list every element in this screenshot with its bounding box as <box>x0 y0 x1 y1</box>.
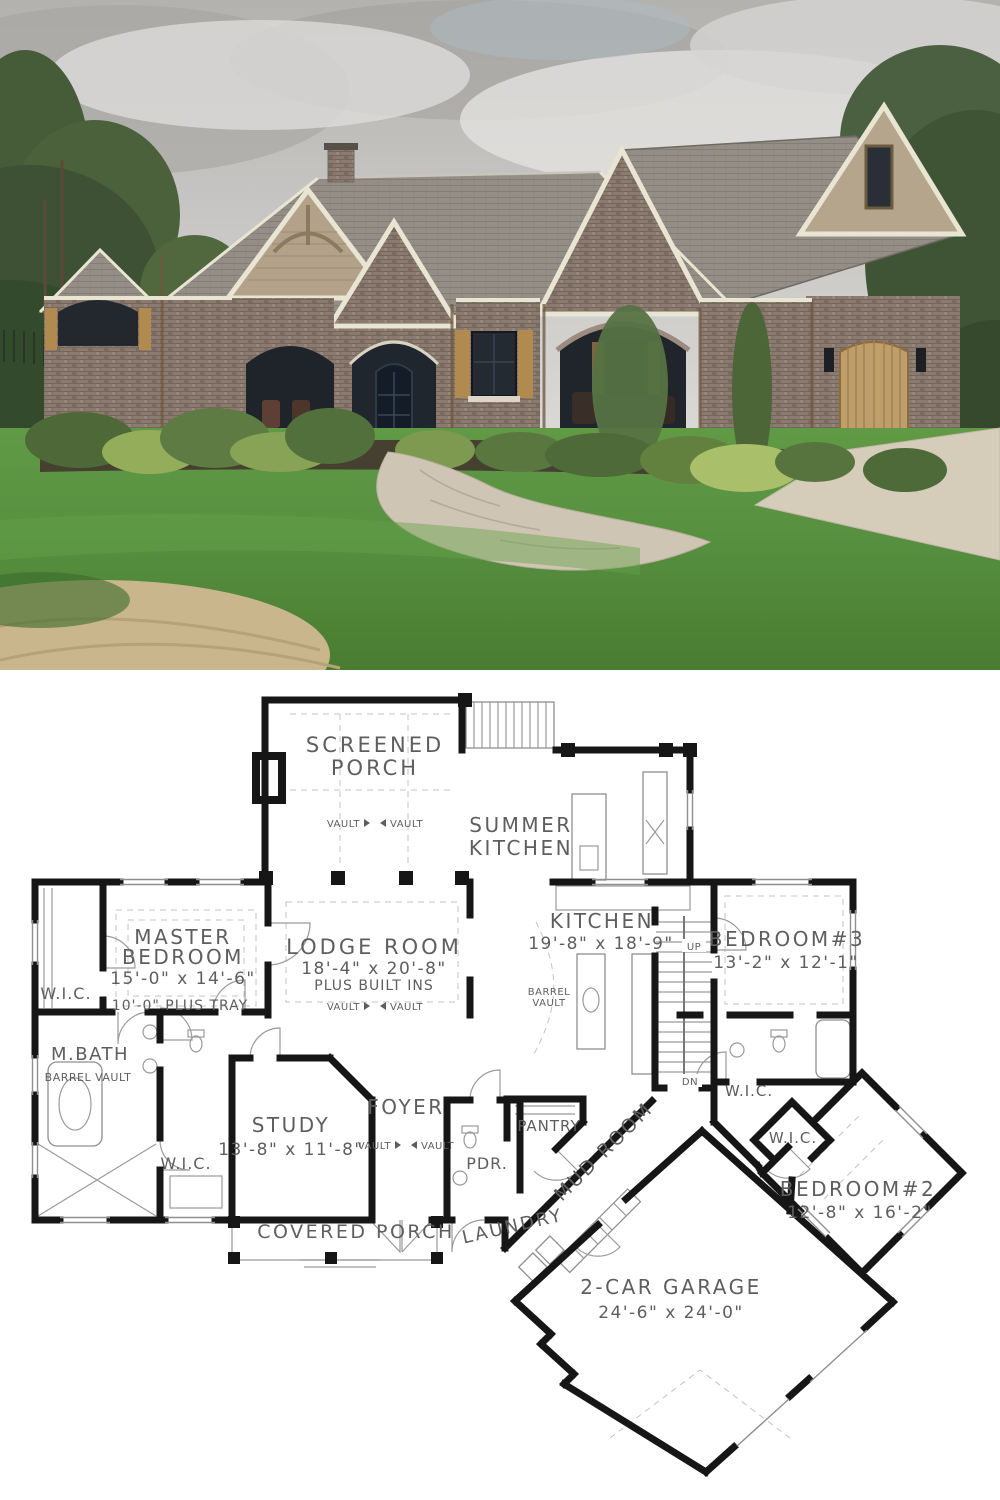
lantern <box>916 348 926 372</box>
label-lodge: LODGE ROOM <box>286 935 462 959</box>
pdr-sink <box>453 1171 467 1185</box>
label-summer-kitchen: SUMMER <box>469 813 572 837</box>
shutter <box>45 308 57 350</box>
deck-stairs <box>466 702 554 748</box>
label-garage: 2-CAR GARAGE <box>580 1275 762 1299</box>
lantern <box>824 348 834 372</box>
summer-kitchen-counter <box>643 772 667 874</box>
dims-lodge: 18'-4" x 20'-8" <box>301 959 447 979</box>
bath3-toilet <box>773 1036 785 1052</box>
note-master: 10'-0" PLUS TRAY <box>112 998 248 1014</box>
kitchen-cabinet <box>632 954 652 1074</box>
label-kitchen: KITCHEN <box>550 909 654 933</box>
label-barrel-vault-kitchen: BARREL <box>528 987 571 998</box>
dims-master: 15'-0" x 14'-6" <box>110 969 256 989</box>
vanity-sink <box>143 1059 157 1073</box>
label-bedroom2: BEDROOM#2 <box>780 1177 936 1201</box>
label-barrel-vault-kitchen: VAULT <box>532 998 566 1009</box>
vault-mark-porch: VAULT VAULT <box>327 819 424 830</box>
label-summer-kitchen: KITCHEN <box>469 836 573 860</box>
shower-tile <box>38 1144 156 1216</box>
dims-kitchen: 19'-8" x 18'-9" <box>528 934 674 954</box>
note-mbath: BARREL VAULT <box>45 1071 132 1084</box>
closet-shelf <box>170 1176 222 1208</box>
floor-plan: SCREENED PORCH VAULT VAULT SUMMER KITCHE… <box>0 670 1000 1500</box>
left-arched-window <box>58 300 138 346</box>
label-up: UP <box>687 942 701 953</box>
rocking-chair <box>572 392 596 424</box>
label-wic-master: W.I.C. <box>40 984 91 1003</box>
note-lodge: PLUS BUILT INS <box>314 978 433 994</box>
vanity-sink <box>143 1025 157 1039</box>
svg-text:VAULT: VAULT <box>327 819 361 830</box>
label-master: BEDROOM <box>122 945 244 969</box>
label-covered-porch: COVERED PORCH <box>257 1221 455 1243</box>
label-pdr: PDR. <box>466 1154 508 1173</box>
label-wic3: W.I.C. <box>725 1082 773 1100</box>
dims-bedroom2: 12'-8" x 16'-2" <box>787 1203 933 1223</box>
pin-image: SCREENED PORCH VAULT VAULT SUMMER KITCHE… <box>0 0 1000 1500</box>
shrub <box>285 408 375 464</box>
svg-text:VAULT: VAULT <box>358 1141 392 1152</box>
chimney <box>324 143 358 182</box>
shrub <box>775 442 855 482</box>
dims-garage: 24'-6" x 24'-0" <box>598 1303 744 1323</box>
gable-window <box>866 146 892 208</box>
bath3-sink <box>730 1043 744 1057</box>
label-dn: DN <box>682 1077 698 1088</box>
label-wic4: W.I.C. <box>769 1129 817 1147</box>
posts <box>228 693 697 1264</box>
label-screened-porch: PORCH <box>331 756 419 780</box>
pantry-shelves <box>515 1106 575 1114</box>
shrub <box>863 448 947 492</box>
summer-kitchen-island <box>572 794 606 880</box>
svg-text:VAULT: VAULT <box>421 1141 455 1152</box>
pdr-toilet <box>464 1132 476 1148</box>
dims-study: 13'-8" x 11'-8" <box>218 1140 364 1160</box>
label-mbath: M.BATH <box>51 1044 129 1065</box>
shutter <box>139 308 151 350</box>
porch-steps <box>300 1260 380 1267</box>
label-wic-hall: W.I.C. <box>160 1154 211 1173</box>
label-foyer: FOYER <box>367 1095 444 1119</box>
bath3-tub <box>816 1020 850 1078</box>
label-pantry: PANTRY <box>517 1117 580 1135</box>
kitchen-counter <box>556 886 690 910</box>
shrub <box>545 433 655 477</box>
rocker <box>262 400 280 428</box>
kitchen-island <box>577 954 605 1049</box>
label-bedroom3: BEDROOM#3 <box>709 927 865 951</box>
svg-text:VAULT: VAULT <box>327 1002 361 1013</box>
cloud <box>50 20 470 130</box>
window-sill <box>468 396 520 402</box>
house-photo <box>0 0 1000 670</box>
dims-bedroom3: 13'-2" x 12'-1" <box>713 953 859 973</box>
label-study: STUDY <box>252 1113 331 1137</box>
windows <box>33 790 931 1446</box>
label-screened-porch: SCREENED <box>306 733 444 757</box>
vault-mark-lodge: VAULT VAULT <box>327 1002 424 1013</box>
svg-text:VAULT: VAULT <box>390 819 424 830</box>
shutter <box>455 330 470 398</box>
shutter <box>518 330 533 398</box>
room-labels: SCREENED PORCH VAULT VAULT SUMMER KITCHE… <box>40 733 936 1323</box>
svg-text:VAULT: VAULT <box>390 1002 424 1013</box>
vault-mark-foyer: VAULT VAULT <box>358 1141 455 1152</box>
